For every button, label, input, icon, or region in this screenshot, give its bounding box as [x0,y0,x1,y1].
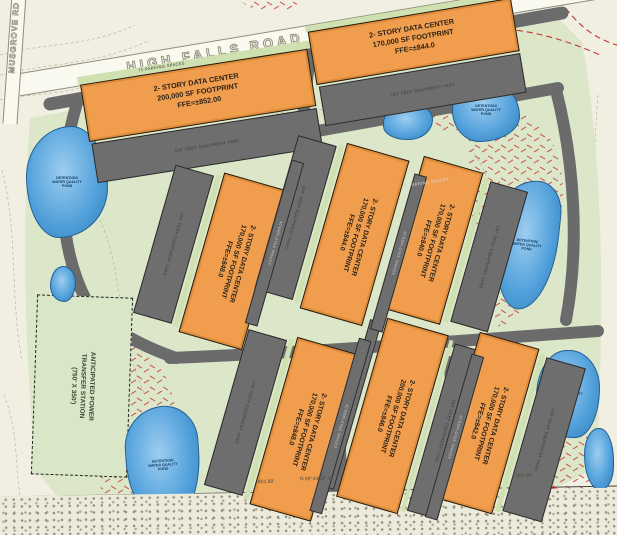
detention-pond [50,266,76,302]
pond-label: DETENTION/WATER QUALITYPOND [512,237,543,253]
survey-bearing: N 89°44'54" W [300,476,333,483]
site-plan: HIGH FALLS ROAD MUSGROVE RD ANTICIPATED … [0,0,617,535]
power-transfer-station-label: ANTICIPATED POWER TRANSFER STATION (750'… [66,306,98,467]
power-transfer-station: ANTICIPATED POWER TRANSFER STATION (750'… [31,294,133,477]
survey-distance: 801.69' [258,479,274,485]
pond-label: DETENTION/WATER QUALITYPOND [148,458,178,473]
pond-label: DETENTION/WATER QUALITYPOND [471,104,500,117]
survey-distance: 900.00' [516,473,532,479]
detention-pond [584,428,614,490]
pond-label: DETENTION/WATER QUALITYPOND [52,176,81,189]
